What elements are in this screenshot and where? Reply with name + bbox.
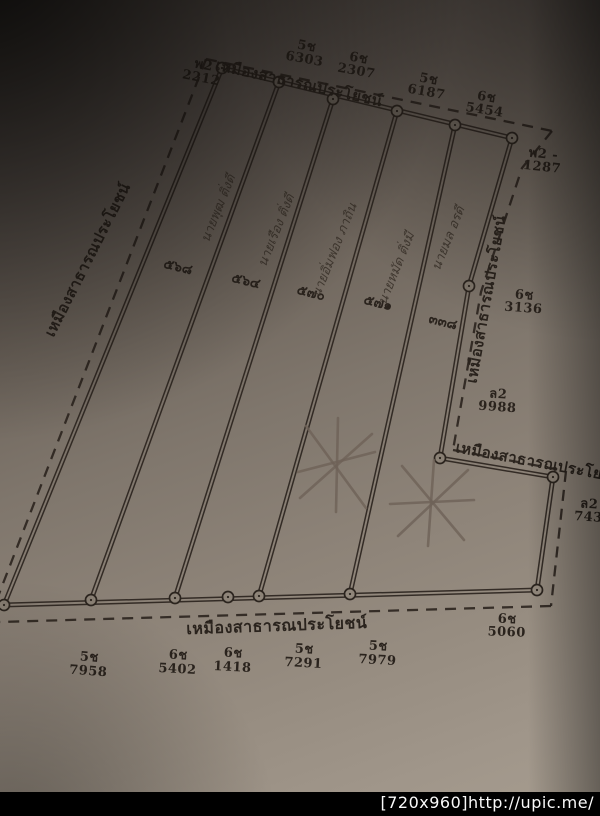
survey-number: 2307 — [336, 61, 376, 82]
survey-point-dot-8 — [439, 457, 441, 459]
handwritten-owner-name-4: นายหมัด ติ่งมี — [373, 227, 419, 307]
survey-point-dot-9 — [552, 476, 554, 478]
boundary-right-lower — [539, 477, 555, 590]
survey-number: 1418 — [213, 659, 252, 676]
plot-divider-4 — [352, 125, 457, 594]
handwritten-owner-name-1: นายพุฒ ติ่งดี — [196, 170, 240, 245]
survey-number: 5060 — [487, 624, 526, 640]
plot-divider-3 — [257, 111, 395, 596]
survey-number: 5454 — [464, 100, 504, 121]
survey-number: 743 — [574, 509, 600, 526]
parcel-number-2: ๕๖๔ — [230, 270, 262, 293]
ditch-dashed-line-6 — [0, 59, 206, 612]
ditch-label-bottom: เหมืองสาธารณประโยชน์ — [186, 612, 368, 638]
survey-mark-top-3: 6ช 2307 — [336, 48, 378, 82]
survey-mark-bottom-3: 6ช 5402 — [158, 647, 198, 678]
handwritten-owner-name-2: นายเรือง ติ่งดี — [253, 189, 299, 269]
survey-number: 7291 — [284, 655, 323, 672]
survey-mark-right-4: ล2 743 — [574, 496, 600, 526]
survey-mark-right-3: ล2 9988 — [478, 386, 518, 417]
survey-number: 6303 — [284, 49, 324, 70]
boundary-bottom — [4, 592, 537, 607]
survey-point-dot-6 — [511, 137, 513, 139]
survey-point-dot-4 — [396, 110, 398, 112]
survey-mark-bottom-2: 5ช 7958 — [69, 649, 109, 681]
pencil-star-annotation-1 — [336, 418, 338, 512]
watermark-text: [720x960]http://upic.me/ — [381, 793, 595, 812]
survey-mark-top-2: 5ช 6303 — [284, 36, 326, 70]
boundary-left — [2, 67, 220, 604]
plot-divider-4 — [348, 125, 453, 594]
survey-number: 9988 — [478, 399, 517, 417]
survey-point-dot-10 — [536, 589, 538, 591]
plot-divider-3 — [261, 111, 399, 596]
survey-number: 7958 — [69, 663, 108, 681]
survey-number: 3136 — [504, 300, 543, 318]
survey-number: 5402 — [158, 661, 197, 678]
survey-point-dot-7 — [468, 285, 470, 287]
photographed-survey-map: เหมืองสาธารณประโยชน์ เหมืองสาธารณประโยชน… — [0, 0, 600, 816]
survey-point-dot-11 — [3, 604, 5, 606]
survey-mark-top-4: 5ช 6187 — [406, 69, 448, 103]
survey-point-dot-13 — [174, 597, 176, 599]
survey-mark-top-5: 6ช 5454 — [464, 87, 506, 121]
cadastral-map-drawing: เหมืองสาธารณประโยชน์ เหมืองสาธารณประโยชน… — [0, 0, 600, 816]
boundary-left — [6, 69, 224, 606]
survey-number: 7979 — [358, 652, 397, 669]
survey-point-dot-15 — [258, 595, 260, 597]
survey-mark-bottom-1: 6ช 5060 — [487, 611, 526, 640]
boundary-right-lower — [535, 477, 551, 590]
survey-mark-bottom-4: 6ช 1418 — [213, 645, 253, 676]
survey-number: 1287 — [522, 158, 562, 177]
survey-point-dot-16 — [349, 593, 351, 595]
handwritten-owner-name-3: นายอิ่มฟอง ภาถิน — [306, 199, 361, 300]
plot-divider-2 — [173, 98, 331, 597]
survey-number: 6187 — [406, 82, 446, 103]
survey-mark-right-1: พ2 - 1287 — [522, 145, 563, 177]
survey-point-dot-14 — [227, 596, 229, 598]
boundary-bottom — [4, 588, 537, 603]
survey-point-dot-5 — [454, 124, 456, 126]
parcel-number-1: ๕๖๘ — [162, 256, 194, 279]
parcel-number-5: ๓๓๘ — [427, 311, 459, 334]
watermark-band: [720x960]http://upic.me/ — [0, 792, 600, 816]
survey-mark-bottom-6: 5ช 7979 — [358, 638, 398, 669]
survey-point-dot-12 — [90, 599, 92, 601]
survey-mark-bottom-5: 5ช 7291 — [284, 641, 324, 672]
boundary-right-mid — [438, 286, 467, 458]
plot-divider-2 — [177, 100, 335, 599]
survey-mark-right-2: 6ช 3136 — [504, 287, 544, 318]
